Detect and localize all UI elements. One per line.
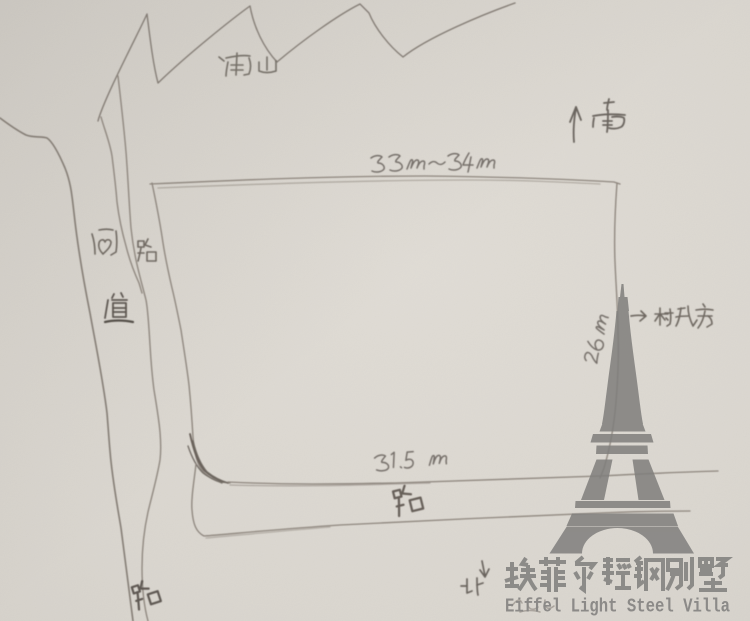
- svg-text:Eiffel Light Steel Villa: Eiffel Light Steel Villa: [505, 596, 730, 618]
